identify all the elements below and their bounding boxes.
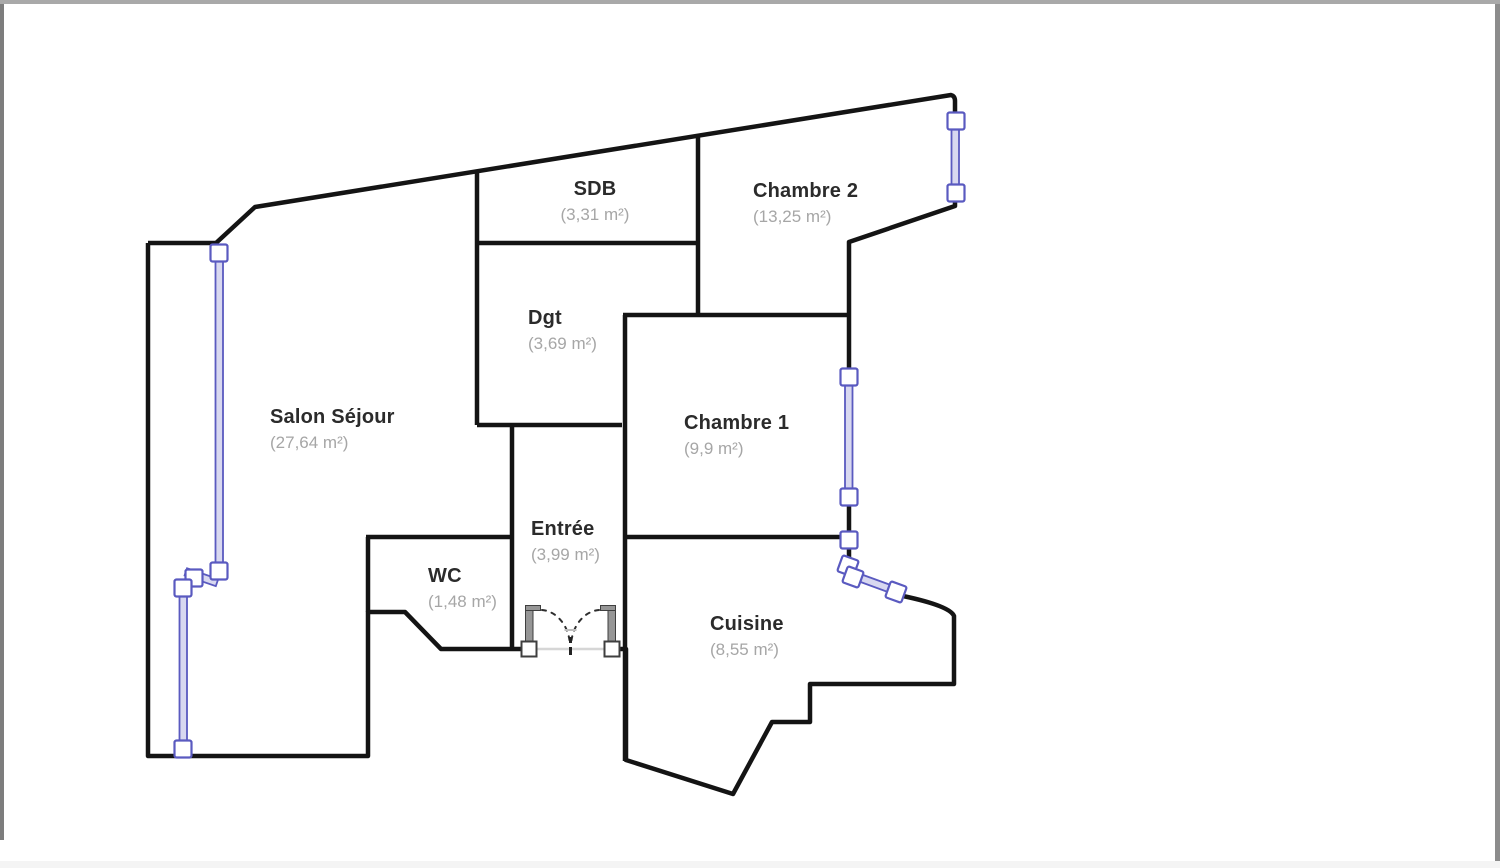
room-area: (3,99 m²) — [531, 545, 600, 565]
room-label-cuisine: Cuisine (8,55 m²) — [710, 613, 784, 660]
door-center-marks — [565, 630, 577, 655]
room-label-wc: WC (1,48 m²) — [428, 565, 497, 612]
window-frame-left-edge — [0, 4, 4, 840]
chambre1-window-glass — [845, 384, 853, 490]
room-area: (3,31 m²) — [545, 205, 645, 225]
window-joint — [841, 532, 858, 549]
room-name: Chambre 2 — [753, 180, 858, 202]
room-area: (8,55 m²) — [710, 640, 784, 660]
right-door-leaf-cap — [601, 606, 616, 611]
right-door-hinge — [605, 642, 620, 657]
page-bottom-edge — [0, 861, 1500, 868]
room-area: (9,9 m²) — [684, 439, 789, 459]
floor-plan-page: SDB (3,31 m²) Chambre 2 (13,25 m²) Dgt (… — [0, 0, 1500, 868]
room-name: WC — [428, 565, 497, 587]
window-joint — [841, 369, 858, 386]
room-area: (3,69 m²) — [528, 334, 597, 354]
room-name: Chambre 1 — [684, 412, 789, 434]
room-name: Cuisine — [710, 613, 784, 635]
window-joint — [948, 185, 965, 202]
room-label-chambre-1: Chambre 1 (9,9 m²) — [684, 412, 789, 459]
room-label-entree: Entrée (3,99 m²) — [531, 518, 600, 565]
left-door-leaf — [526, 606, 534, 645]
left-door-swing-arc — [542, 610, 570, 646]
left-door-hinge — [522, 642, 537, 657]
window-joint — [841, 489, 858, 506]
room-name: Salon Séjour — [270, 406, 395, 428]
window-joint — [948, 113, 965, 130]
chambre2-window-glass — [952, 129, 960, 187]
room-label-chambre-2: Chambre 2 (13,25 m²) — [753, 180, 858, 227]
right-door-leaf — [608, 606, 616, 645]
window-joint — [211, 245, 228, 262]
room-label-sdb: SDB (3,31 m²) — [545, 178, 645, 225]
room-label-dgt: Dgt (3,69 m²) — [528, 307, 597, 354]
room-name: Entrée — [531, 518, 600, 540]
salon-window-lower-glass — [180, 593, 188, 743]
room-name: Dgt — [528, 307, 597, 329]
window-joint — [211, 563, 228, 580]
window-joint — [175, 741, 192, 758]
room-area: (13,25 m²) — [753, 207, 858, 227]
window-joint — [175, 580, 192, 597]
room-area: (1,48 m²) — [428, 592, 497, 612]
right-door-swing-arc — [571, 610, 599, 646]
left-door-leaf-cap — [526, 606, 541, 611]
window-frame-top-edge — [0, 0, 1500, 4]
room-area: (27,64 m²) — [270, 433, 395, 453]
room-label-salon-sejour: Salon Séjour (27,64 m²) — [270, 406, 395, 453]
entry-double-door — [522, 606, 620, 657]
window-frame-right-edge — [1495, 4, 1500, 868]
room-name: SDB — [545, 178, 645, 200]
salon-window-upper-glass — [216, 260, 224, 565]
